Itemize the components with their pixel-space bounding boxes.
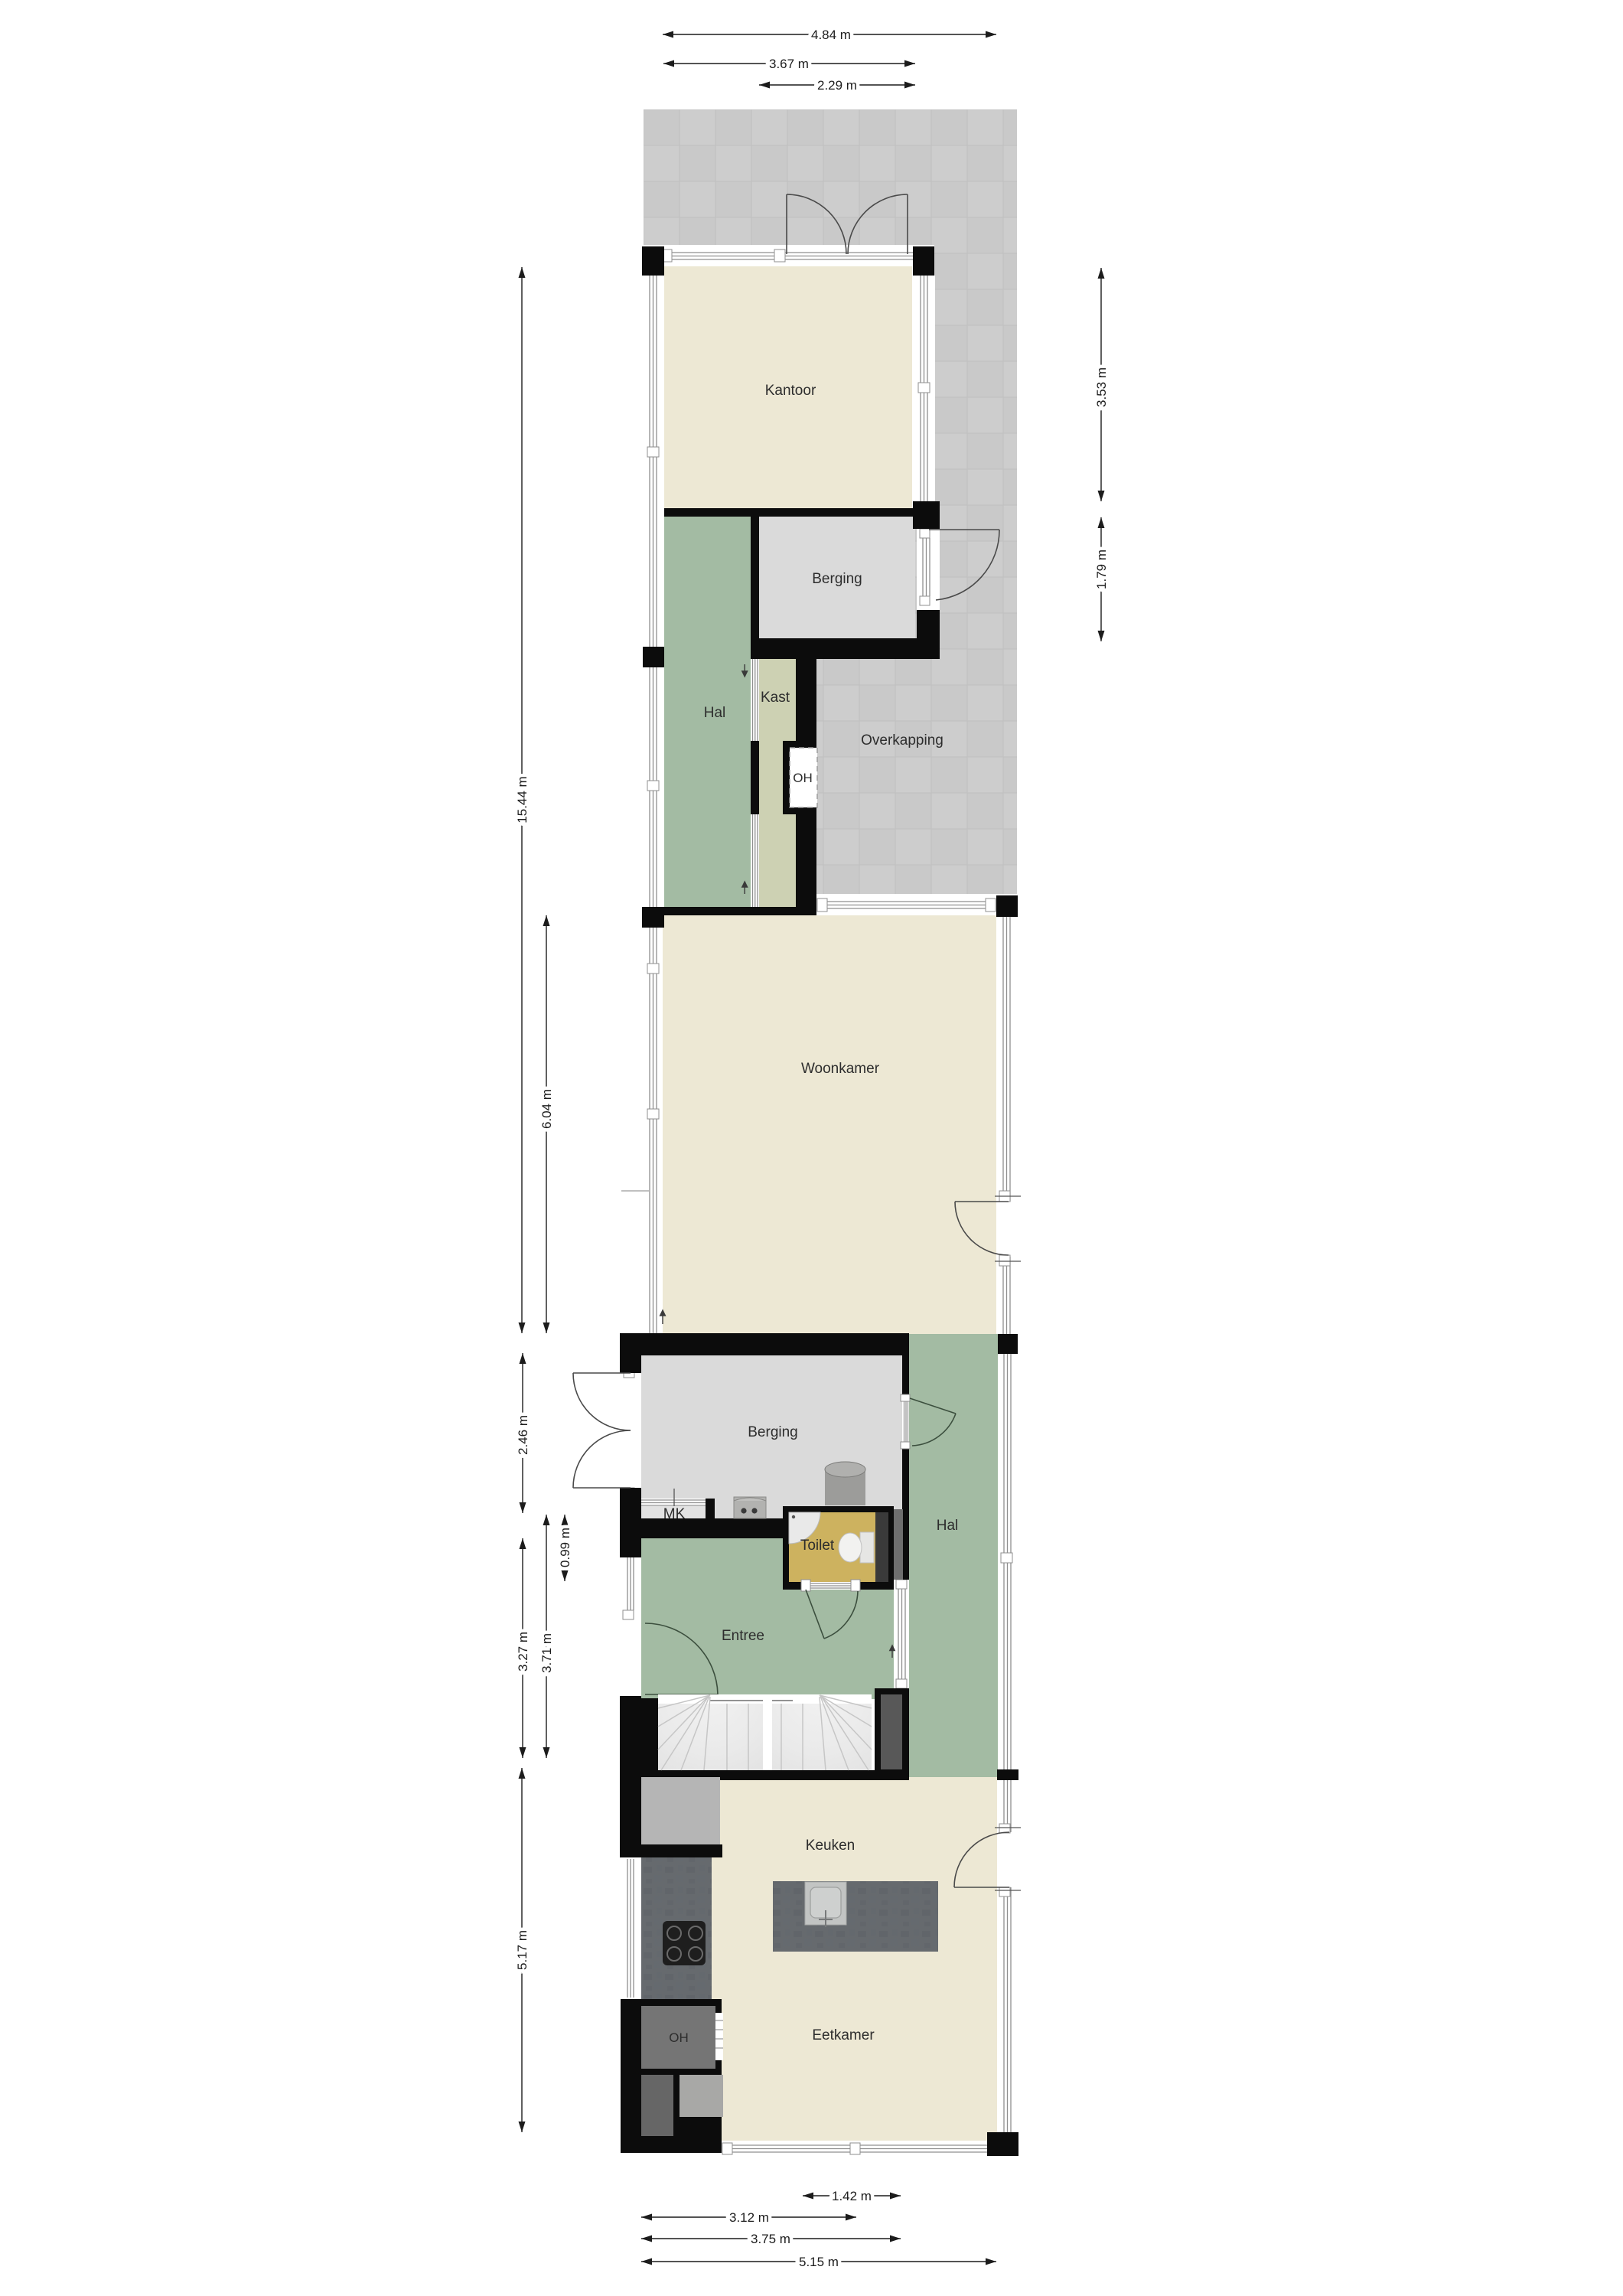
svg-text:3.12 m: 3.12 m bbox=[729, 2210, 769, 2225]
svg-text:0.99 m: 0.99 m bbox=[558, 1528, 572, 1567]
svg-text:2.29 m: 2.29 m bbox=[817, 78, 857, 93]
svg-text:3.53 m: 3.53 m bbox=[1094, 367, 1109, 407]
svg-text:Woonkamer: Woonkamer bbox=[801, 1061, 880, 1077]
svg-text:5.15 m: 5.15 m bbox=[799, 2255, 839, 2269]
svg-text:OH: OH bbox=[669, 2030, 689, 2045]
svg-text:6.04 m: 6.04 m bbox=[539, 1089, 554, 1129]
svg-text:3.27 m: 3.27 m bbox=[516, 1632, 530, 1671]
svg-text:3.71 m: 3.71 m bbox=[539, 1633, 554, 1673]
svg-text:3.75 m: 3.75 m bbox=[751, 2232, 790, 2246]
svg-text:Keuken: Keuken bbox=[806, 1838, 855, 1854]
svg-text:15.44 m: 15.44 m bbox=[515, 776, 530, 823]
svg-text:1.42 m: 1.42 m bbox=[832, 2189, 872, 2203]
svg-text:Overkapping: Overkapping bbox=[861, 732, 943, 748]
svg-text:3.67 m: 3.67 m bbox=[769, 57, 809, 71]
svg-text:OH: OH bbox=[793, 771, 813, 785]
svg-text:4.84 m: 4.84 m bbox=[811, 28, 851, 42]
svg-text:5.17 m: 5.17 m bbox=[515, 1930, 530, 1970]
svg-text:Entree: Entree bbox=[722, 1628, 764, 1644]
svg-text:Hal: Hal bbox=[937, 1518, 959, 1534]
svg-text:Kantoor: Kantoor bbox=[765, 383, 816, 399]
svg-text:1.79 m: 1.79 m bbox=[1094, 550, 1109, 589]
svg-text:Toilet: Toilet bbox=[800, 1538, 835, 1554]
svg-text:Kast: Kast bbox=[761, 690, 790, 706]
svg-text:Berging: Berging bbox=[812, 571, 862, 587]
svg-text:Eetkamer: Eetkamer bbox=[812, 2027, 875, 2043]
svg-text:2.46 m: 2.46 m bbox=[516, 1415, 530, 1455]
svg-text:Berging: Berging bbox=[748, 1424, 798, 1440]
svg-text:Hal: Hal bbox=[704, 705, 726, 721]
svg-text:MK: MK bbox=[663, 1506, 686, 1522]
